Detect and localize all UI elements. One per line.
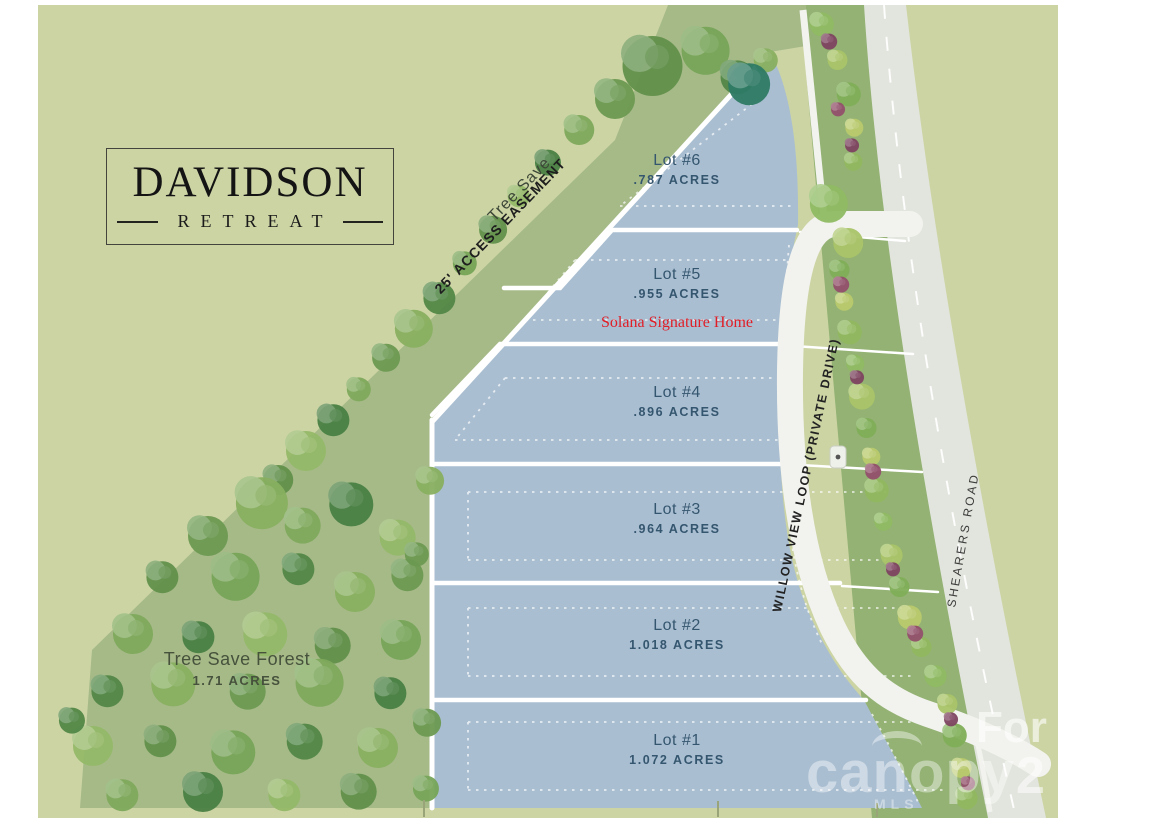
lot-4-acres: .896 ACRES	[567, 405, 787, 419]
lot-5-acres: .955 ACRES	[567, 287, 787, 301]
lot-1-label: Lot #1 1.072 ACRES	[567, 732, 787, 767]
builder-note: Solana Signature Home	[567, 314, 787, 332]
lot-3-acres: .964 ACRES	[567, 522, 787, 536]
site-plan-page: DAVIDSON RETREAT Tree Save 25' ACCESS EA…	[0, 0, 1152, 823]
lot-2-name: Lot #2	[567, 617, 787, 635]
kiosk-marker	[830, 446, 846, 468]
logo-subtitle-row: RETREAT	[107, 211, 393, 232]
lot-2-label: Lot #2 1.018 ACRES	[567, 617, 787, 652]
logo-title: DAVIDSON	[132, 161, 367, 204]
lot-6-acres: .787 ACRES	[567, 173, 787, 187]
lot-6-name: Lot #6	[567, 152, 787, 170]
mls-watermark-sub: MLS	[874, 797, 919, 811]
forest-name: Tree Save Forest	[127, 649, 347, 670]
lot-2-acres: 1.018 ACRES	[567, 638, 787, 652]
lot-3-name: Lot #3	[567, 501, 787, 519]
lot-6-label: Lot #6 .787 ACRES	[567, 152, 787, 187]
watermark-overlay-text: For	[976, 706, 1047, 750]
lot-1-name: Lot #1	[567, 732, 787, 750]
mls-watermark-arc	[872, 731, 922, 762]
logo-rule-left	[117, 221, 158, 223]
tree-save-forest-label: Tree Save Forest 1.71 ACRES	[127, 649, 347, 688]
development-logo: DAVIDSON RETREAT	[106, 148, 394, 245]
lot-5-name: Lot #5	[567, 266, 787, 284]
watermark-overlay-number: 2	[1016, 750, 1045, 802]
forest-acres: 1.71 ACRES	[127, 673, 347, 688]
lot-4-name: Lot #4	[567, 384, 787, 402]
logo-rule-right	[343, 221, 384, 223]
lot-5-label: Lot #5 .955 ACRES	[567, 266, 787, 301]
logo-subtitle: RETREAT	[167, 211, 334, 232]
lot-4-label: Lot #4 .896 ACRES	[567, 384, 787, 419]
lot-1-acres: 1.072 ACRES	[567, 753, 787, 767]
lot-3-label: Lot #3 .964 ACRES	[567, 501, 787, 536]
